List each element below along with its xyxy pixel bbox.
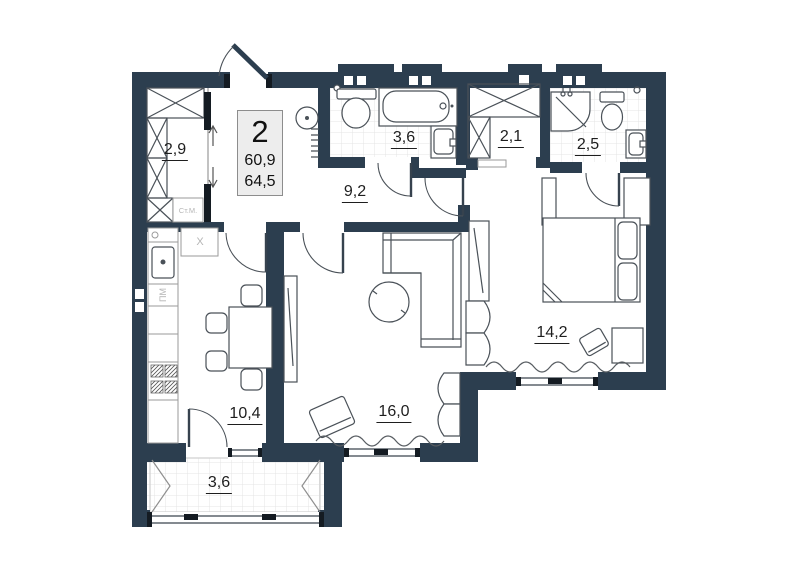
desk bbox=[612, 328, 643, 363]
entrance-door bbox=[219, 45, 272, 88]
shower-room-toilet bbox=[600, 92, 624, 130]
desk-chair bbox=[579, 327, 610, 356]
room-label-hallway: 9,2 bbox=[342, 184, 368, 203]
dining-table bbox=[229, 307, 272, 368]
bedroom-door bbox=[425, 178, 463, 216]
total-area: 64,5 bbox=[244, 174, 275, 190]
living-room-door bbox=[303, 233, 343, 273]
wardrobe-sliding-door bbox=[204, 88, 217, 222]
bathroom-door bbox=[378, 163, 411, 197]
room-label-living: 16,0 bbox=[376, 404, 411, 423]
living-side-units bbox=[438, 373, 460, 436]
towel-radiator bbox=[311, 129, 319, 157]
balcony-door bbox=[189, 409, 227, 447]
room-count: 2 bbox=[251, 116, 268, 147]
dishwasher-label: ПМ bbox=[153, 281, 173, 309]
kitchen-window bbox=[228, 445, 262, 460]
room-label-balcony: 3,6 bbox=[206, 475, 232, 494]
room-label-closet: 2,1 bbox=[498, 129, 524, 148]
kitchen-door bbox=[226, 233, 266, 272]
armchair bbox=[309, 396, 356, 439]
room-label-wardrobe: 2,9 bbox=[162, 142, 188, 161]
bedroom-window bbox=[516, 372, 598, 390]
shower-room-door bbox=[586, 173, 619, 206]
room-label-kitchen: 10,4 bbox=[227, 406, 262, 425]
bathtub bbox=[379, 88, 457, 126]
bathroom-sink bbox=[431, 126, 456, 158]
living-room-window bbox=[344, 443, 420, 462]
bedroom-tv-panel bbox=[469, 221, 489, 301]
fridge-label: X bbox=[192, 234, 208, 250]
shower-room-sink bbox=[626, 130, 646, 158]
room-label-bedroom: 14,2 bbox=[534, 325, 569, 344]
room-label-bathroom: 3,6 bbox=[391, 130, 417, 149]
bedroom-dresser bbox=[466, 301, 490, 365]
closet-threshold bbox=[478, 160, 506, 167]
apartment-info-box: 2 60,9 64,5 bbox=[237, 110, 283, 196]
floor-plan: 2,9 3,6 2,1 2,5 9,2 14,2 10,4 16,0 3,6 2… bbox=[0, 0, 800, 565]
bedroom-radiator bbox=[486, 362, 630, 372]
washing-machine-label: Ст.М. bbox=[173, 200, 203, 220]
room-label-shower: 2,5 bbox=[575, 137, 601, 156]
living-tv-panel bbox=[284, 276, 297, 382]
coffee-table bbox=[369, 282, 409, 322]
floor-plan-drawing bbox=[0, 0, 800, 565]
hallway-light bbox=[296, 107, 318, 129]
shower-cabin bbox=[551, 88, 590, 131]
bed bbox=[543, 218, 640, 302]
living-area: 60,9 bbox=[244, 153, 275, 169]
